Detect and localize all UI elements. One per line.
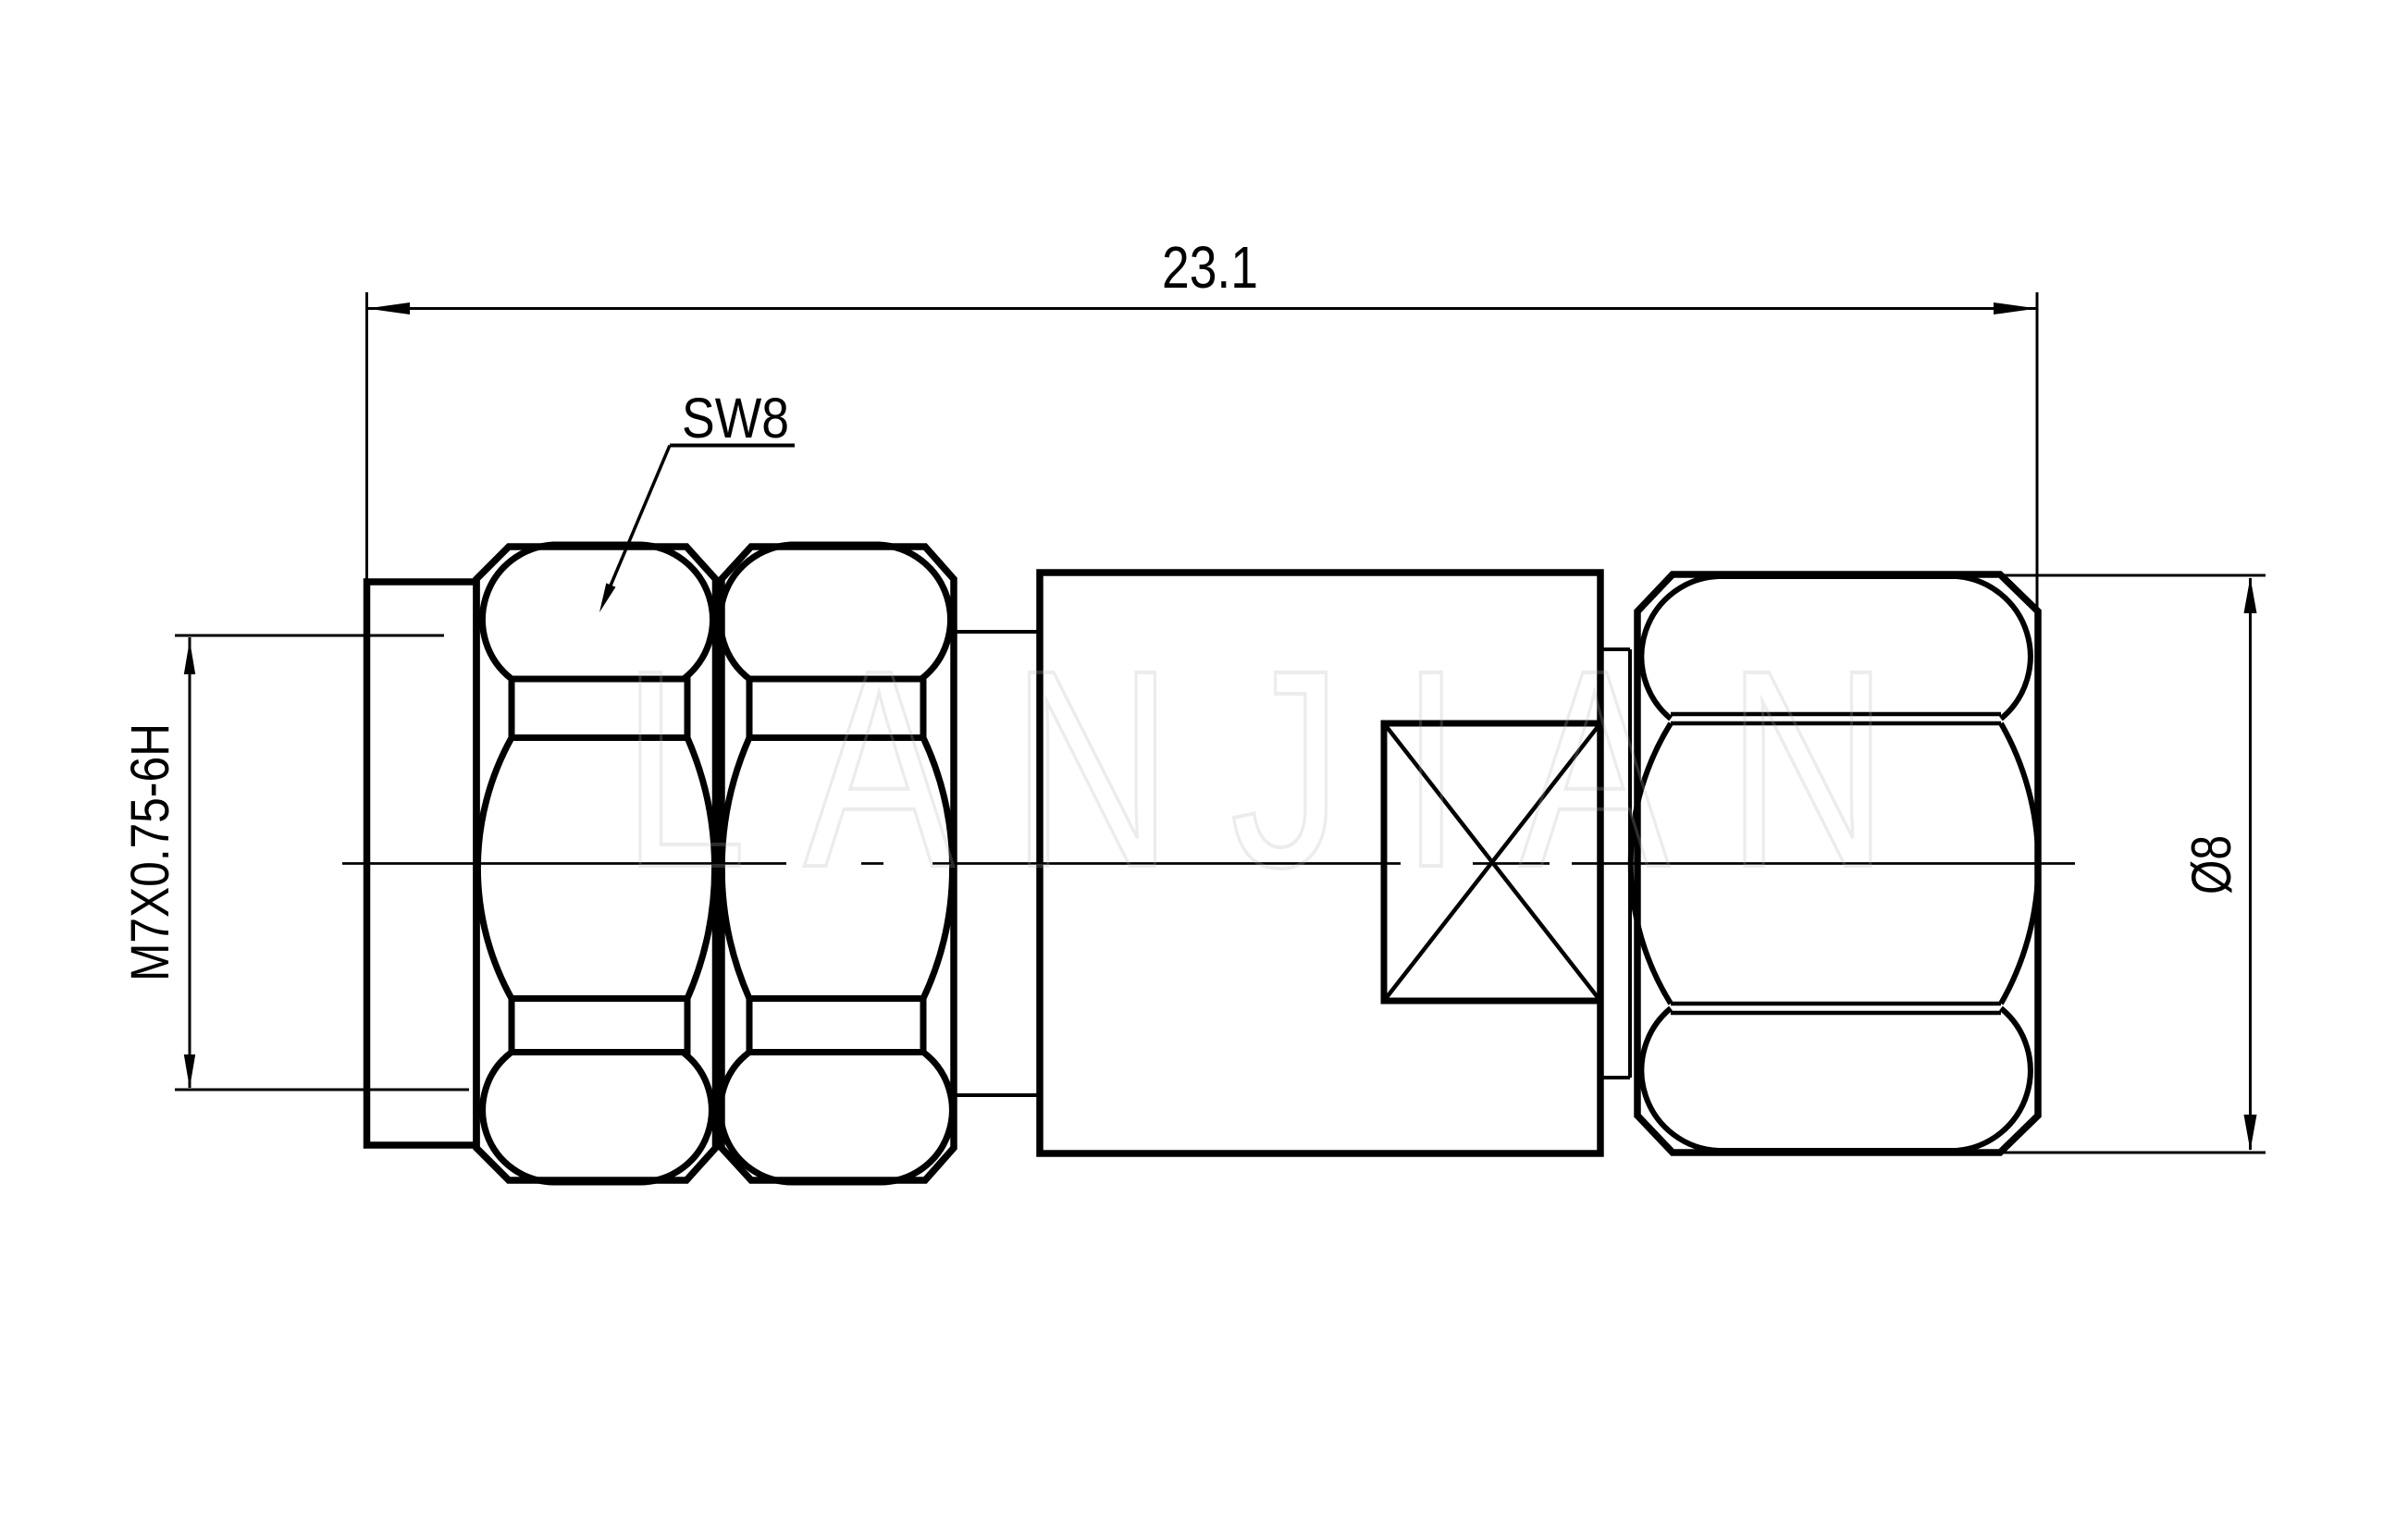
svg-text:LANJIAN: LANJIAN [622, 612, 1945, 926]
svg-text:23.1: 23.1 [1162, 234, 1258, 301]
svg-text:Ø8: Ø8 [2180, 835, 2242, 894]
svg-text:SW8: SW8 [682, 387, 789, 450]
svg-text:M7X0.75-6H: M7X0.75-6H [120, 723, 180, 981]
